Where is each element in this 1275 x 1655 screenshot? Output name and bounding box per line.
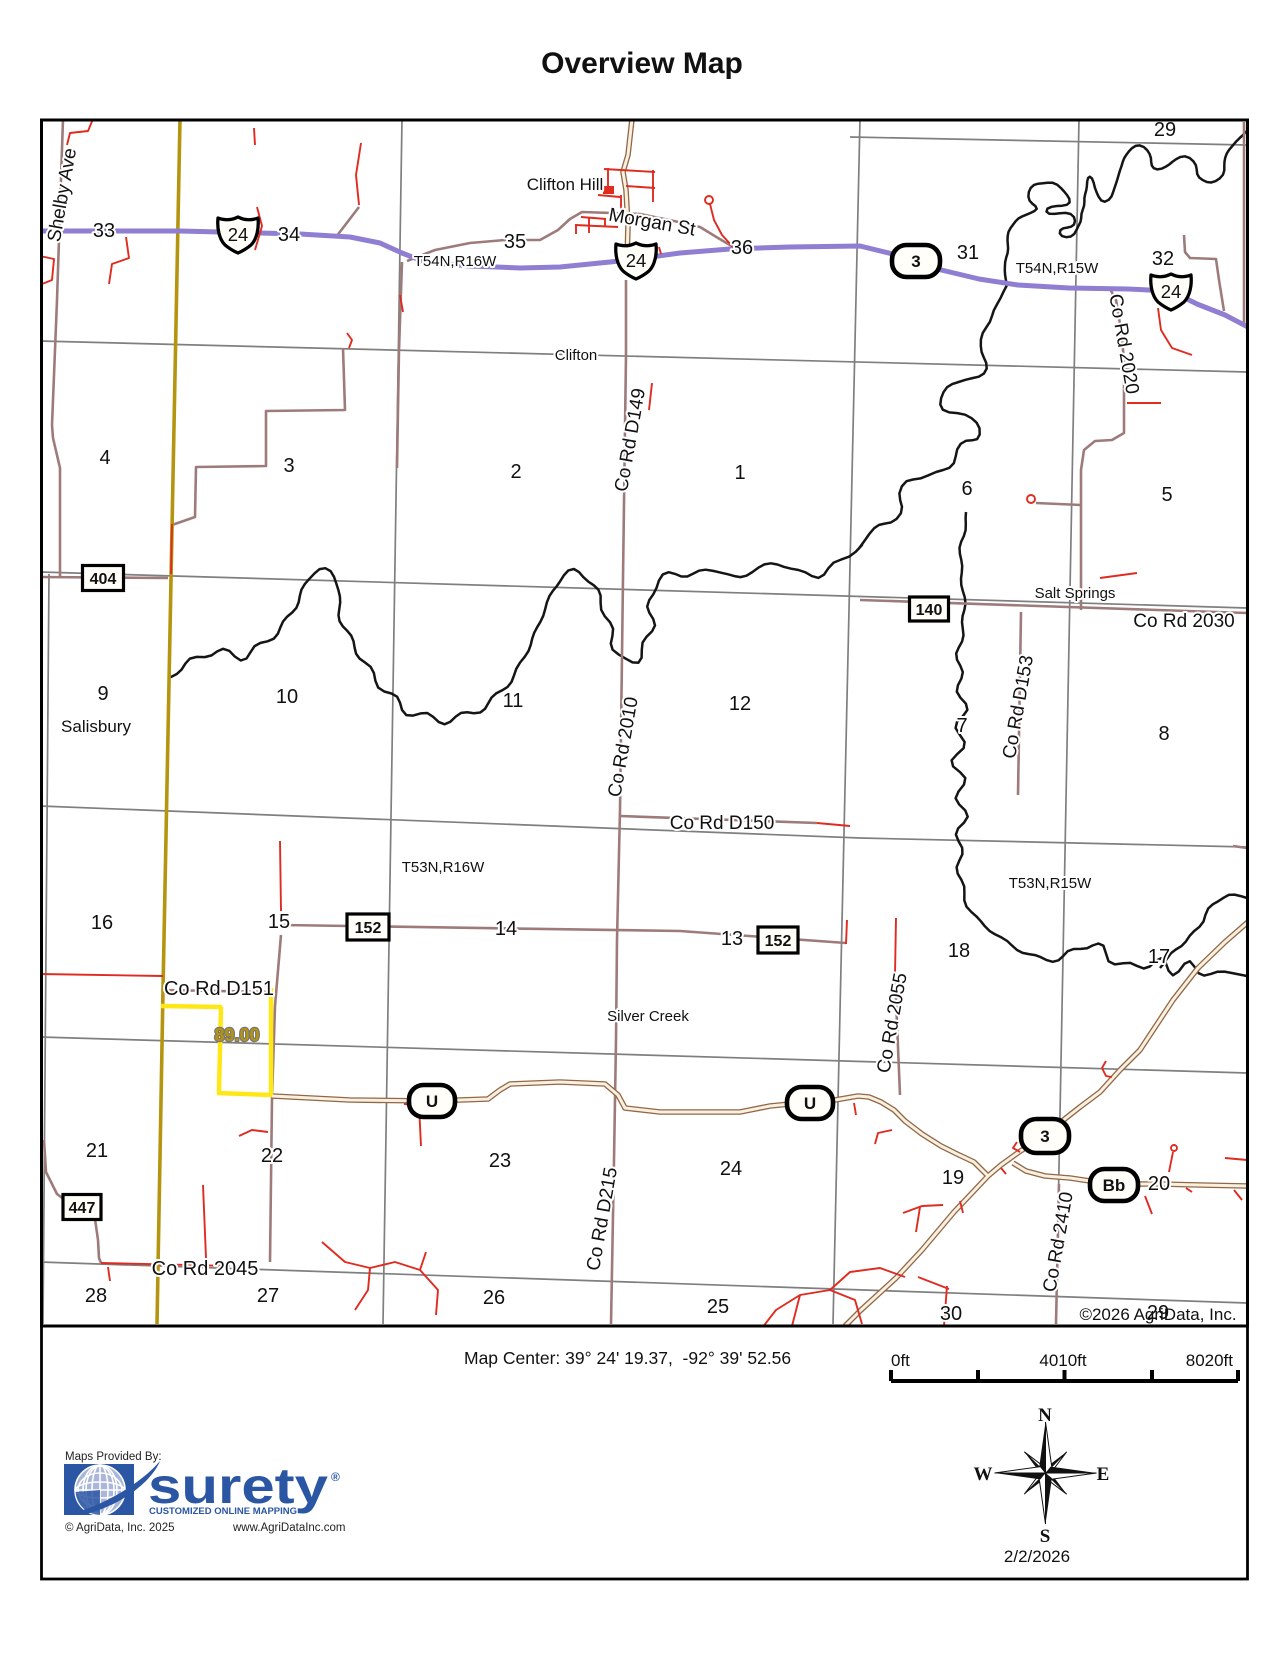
svg-text:29: 29 — [1154, 119, 1176, 141]
svg-text:33: 33 — [93, 220, 115, 242]
svg-text:152: 152 — [355, 920, 382, 937]
svg-text:Co Rd D151: Co Rd D151 — [164, 978, 274, 1000]
svg-text:T54N,R15W: T54N,R15W — [1016, 260, 1099, 277]
svg-text:5: 5 — [1161, 484, 1172, 506]
svg-text:15: 15 — [268, 911, 290, 933]
svg-text:3: 3 — [1040, 1127, 1049, 1146]
svg-text:22: 22 — [261, 1145, 283, 1167]
svg-text:34: 34 — [278, 224, 300, 246]
svg-text:1: 1 — [734, 462, 745, 484]
svg-text:25: 25 — [707, 1296, 729, 1318]
svg-text:S: S — [1040, 1526, 1051, 1547]
svg-text:89.00: 89.00 — [214, 1025, 259, 1045]
svg-text:Co Rd 2045: Co Rd 2045 — [152, 1258, 259, 1280]
svg-text:8: 8 — [1158, 723, 1169, 745]
svg-text:8020ft: 8020ft — [1186, 1351, 1234, 1370]
svg-text:32: 32 — [1152, 248, 1174, 270]
svg-text:14: 14 — [495, 918, 517, 940]
svg-text:36: 36 — [731, 237, 753, 259]
svg-text:447: 447 — [69, 1200, 96, 1217]
svg-text:31: 31 — [957, 242, 979, 264]
svg-text:2: 2 — [510, 461, 521, 483]
svg-text:Salisbury: Salisbury — [61, 717, 131, 736]
svg-text:3: 3 — [283, 455, 294, 477]
svg-text:20: 20 — [1148, 1173, 1170, 1195]
svg-text:2/2/2026: 2/2/2026 — [1004, 1547, 1070, 1566]
svg-text:17: 17 — [1148, 946, 1170, 968]
svg-text:Silver Creek: Silver Creek — [607, 1008, 689, 1025]
svg-text:23: 23 — [489, 1150, 511, 1172]
svg-text:E: E — [1097, 1464, 1110, 1485]
svg-text:26: 26 — [483, 1287, 505, 1309]
svg-text:Co Rd 2030: Co Rd 2030 — [1133, 611, 1234, 632]
svg-text:152: 152 — [765, 933, 792, 950]
svg-text:www.AgriDataInc.com: www.AgriDataInc.com — [232, 1522, 345, 1534]
svg-text:21: 21 — [86, 1140, 108, 1162]
svg-text:35: 35 — [504, 231, 526, 253]
svg-text:11: 11 — [503, 690, 524, 712]
svg-text:© AgriData, Inc. 2025: © AgriData, Inc. 2025 — [65, 1522, 174, 1534]
svg-text:6: 6 — [961, 478, 972, 500]
svg-text:24: 24 — [626, 250, 647, 271]
svg-text:Clifton Hill: Clifton Hill — [527, 175, 604, 194]
svg-text:Bb: Bb — [1103, 1176, 1126, 1195]
svg-text:12: 12 — [729, 693, 751, 715]
svg-text:0ft: 0ft — [891, 1351, 910, 1370]
svg-text:Map Center: 39° 24' 19.37, -9: Map Center: 39° 24' 19.37, -92° 39' 52.5… — [464, 1348, 791, 1368]
svg-text:24: 24 — [228, 224, 249, 245]
svg-text:T53N,R15W: T53N,R15W — [1009, 875, 1092, 892]
svg-text:30: 30 — [940, 1303, 962, 1325]
svg-text:27: 27 — [257, 1285, 279, 1307]
svg-text:10: 10 — [276, 686, 298, 708]
svg-text:7: 7 — [956, 715, 967, 737]
svg-text:Co Rd D150: Co Rd D150 — [670, 813, 775, 834]
svg-text:W: W — [974, 1464, 993, 1485]
svg-text:140: 140 — [916, 602, 943, 619]
svg-text:3: 3 — [911, 252, 920, 271]
svg-text:U: U — [804, 1094, 816, 1113]
svg-text:Clifton: Clifton — [555, 347, 598, 364]
svg-text:19: 19 — [942, 1167, 964, 1189]
svg-text:Overview Map: Overview Map — [541, 47, 743, 80]
svg-text:®: ® — [331, 1470, 340, 1484]
svg-text:N: N — [1038, 1405, 1052, 1426]
svg-text:CUSTOMIZED ONLINE MAPPING: CUSTOMIZED ONLINE MAPPING — [149, 1506, 297, 1517]
svg-text:4010ft: 4010ft — [1039, 1351, 1087, 1370]
svg-text:24: 24 — [1161, 281, 1182, 302]
svg-text:©2026 AgriData, Inc.: ©2026 AgriData, Inc. — [1079, 1305, 1236, 1324]
svg-text:T53N,R16W: T53N,R16W — [402, 859, 485, 876]
svg-text:9: 9 — [97, 683, 108, 705]
svg-text:404: 404 — [90, 571, 117, 588]
svg-text:18: 18 — [948, 940, 970, 962]
svg-text:13: 13 — [721, 928, 743, 950]
svg-text:Salt Springs: Salt Springs — [1035, 585, 1116, 602]
svg-text:U: U — [426, 1092, 438, 1111]
svg-text:28: 28 — [85, 1285, 107, 1307]
svg-text:24: 24 — [720, 1158, 742, 1180]
svg-text:4: 4 — [99, 447, 110, 469]
svg-text:T54N,R16W: T54N,R16W — [414, 253, 497, 270]
svg-text:16: 16 — [91, 912, 113, 934]
